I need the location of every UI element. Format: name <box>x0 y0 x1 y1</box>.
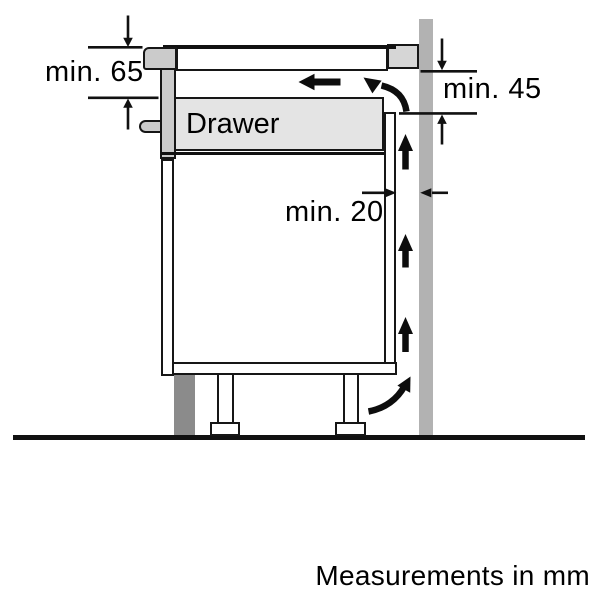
down-arrow-icon <box>437 61 447 70</box>
airflow-up-arrow-3-icon <box>398 317 413 334</box>
airflow-up-arrow-2-icon <box>398 234 413 251</box>
airflow-up-arrow-1-icon <box>398 134 413 151</box>
airflow-curve-bottom-icon <box>369 386 405 412</box>
down-arrow-icon <box>123 38 133 47</box>
up-arrow-icon <box>123 99 133 108</box>
left-arrow-icon <box>420 188 431 197</box>
back-clearance-label: min. 45 <box>443 75 542 104</box>
up-arrow-icon <box>437 115 447 124</box>
airflow-arrows <box>299 74 414 412</box>
front-clearance-label: min. 65 <box>45 58 144 87</box>
installation-diagram: Drawer <box>0 0 600 600</box>
airflow-curve-top-icon <box>382 86 407 112</box>
rear-gap-label: min. 20 <box>285 198 384 227</box>
airflow-left-arrow-icon <box>299 74 315 90</box>
airflow-curve-top-icon <box>364 78 382 94</box>
right-arrow-icon <box>385 188 396 197</box>
units-note: Measurements in mm <box>315 562 590 590</box>
